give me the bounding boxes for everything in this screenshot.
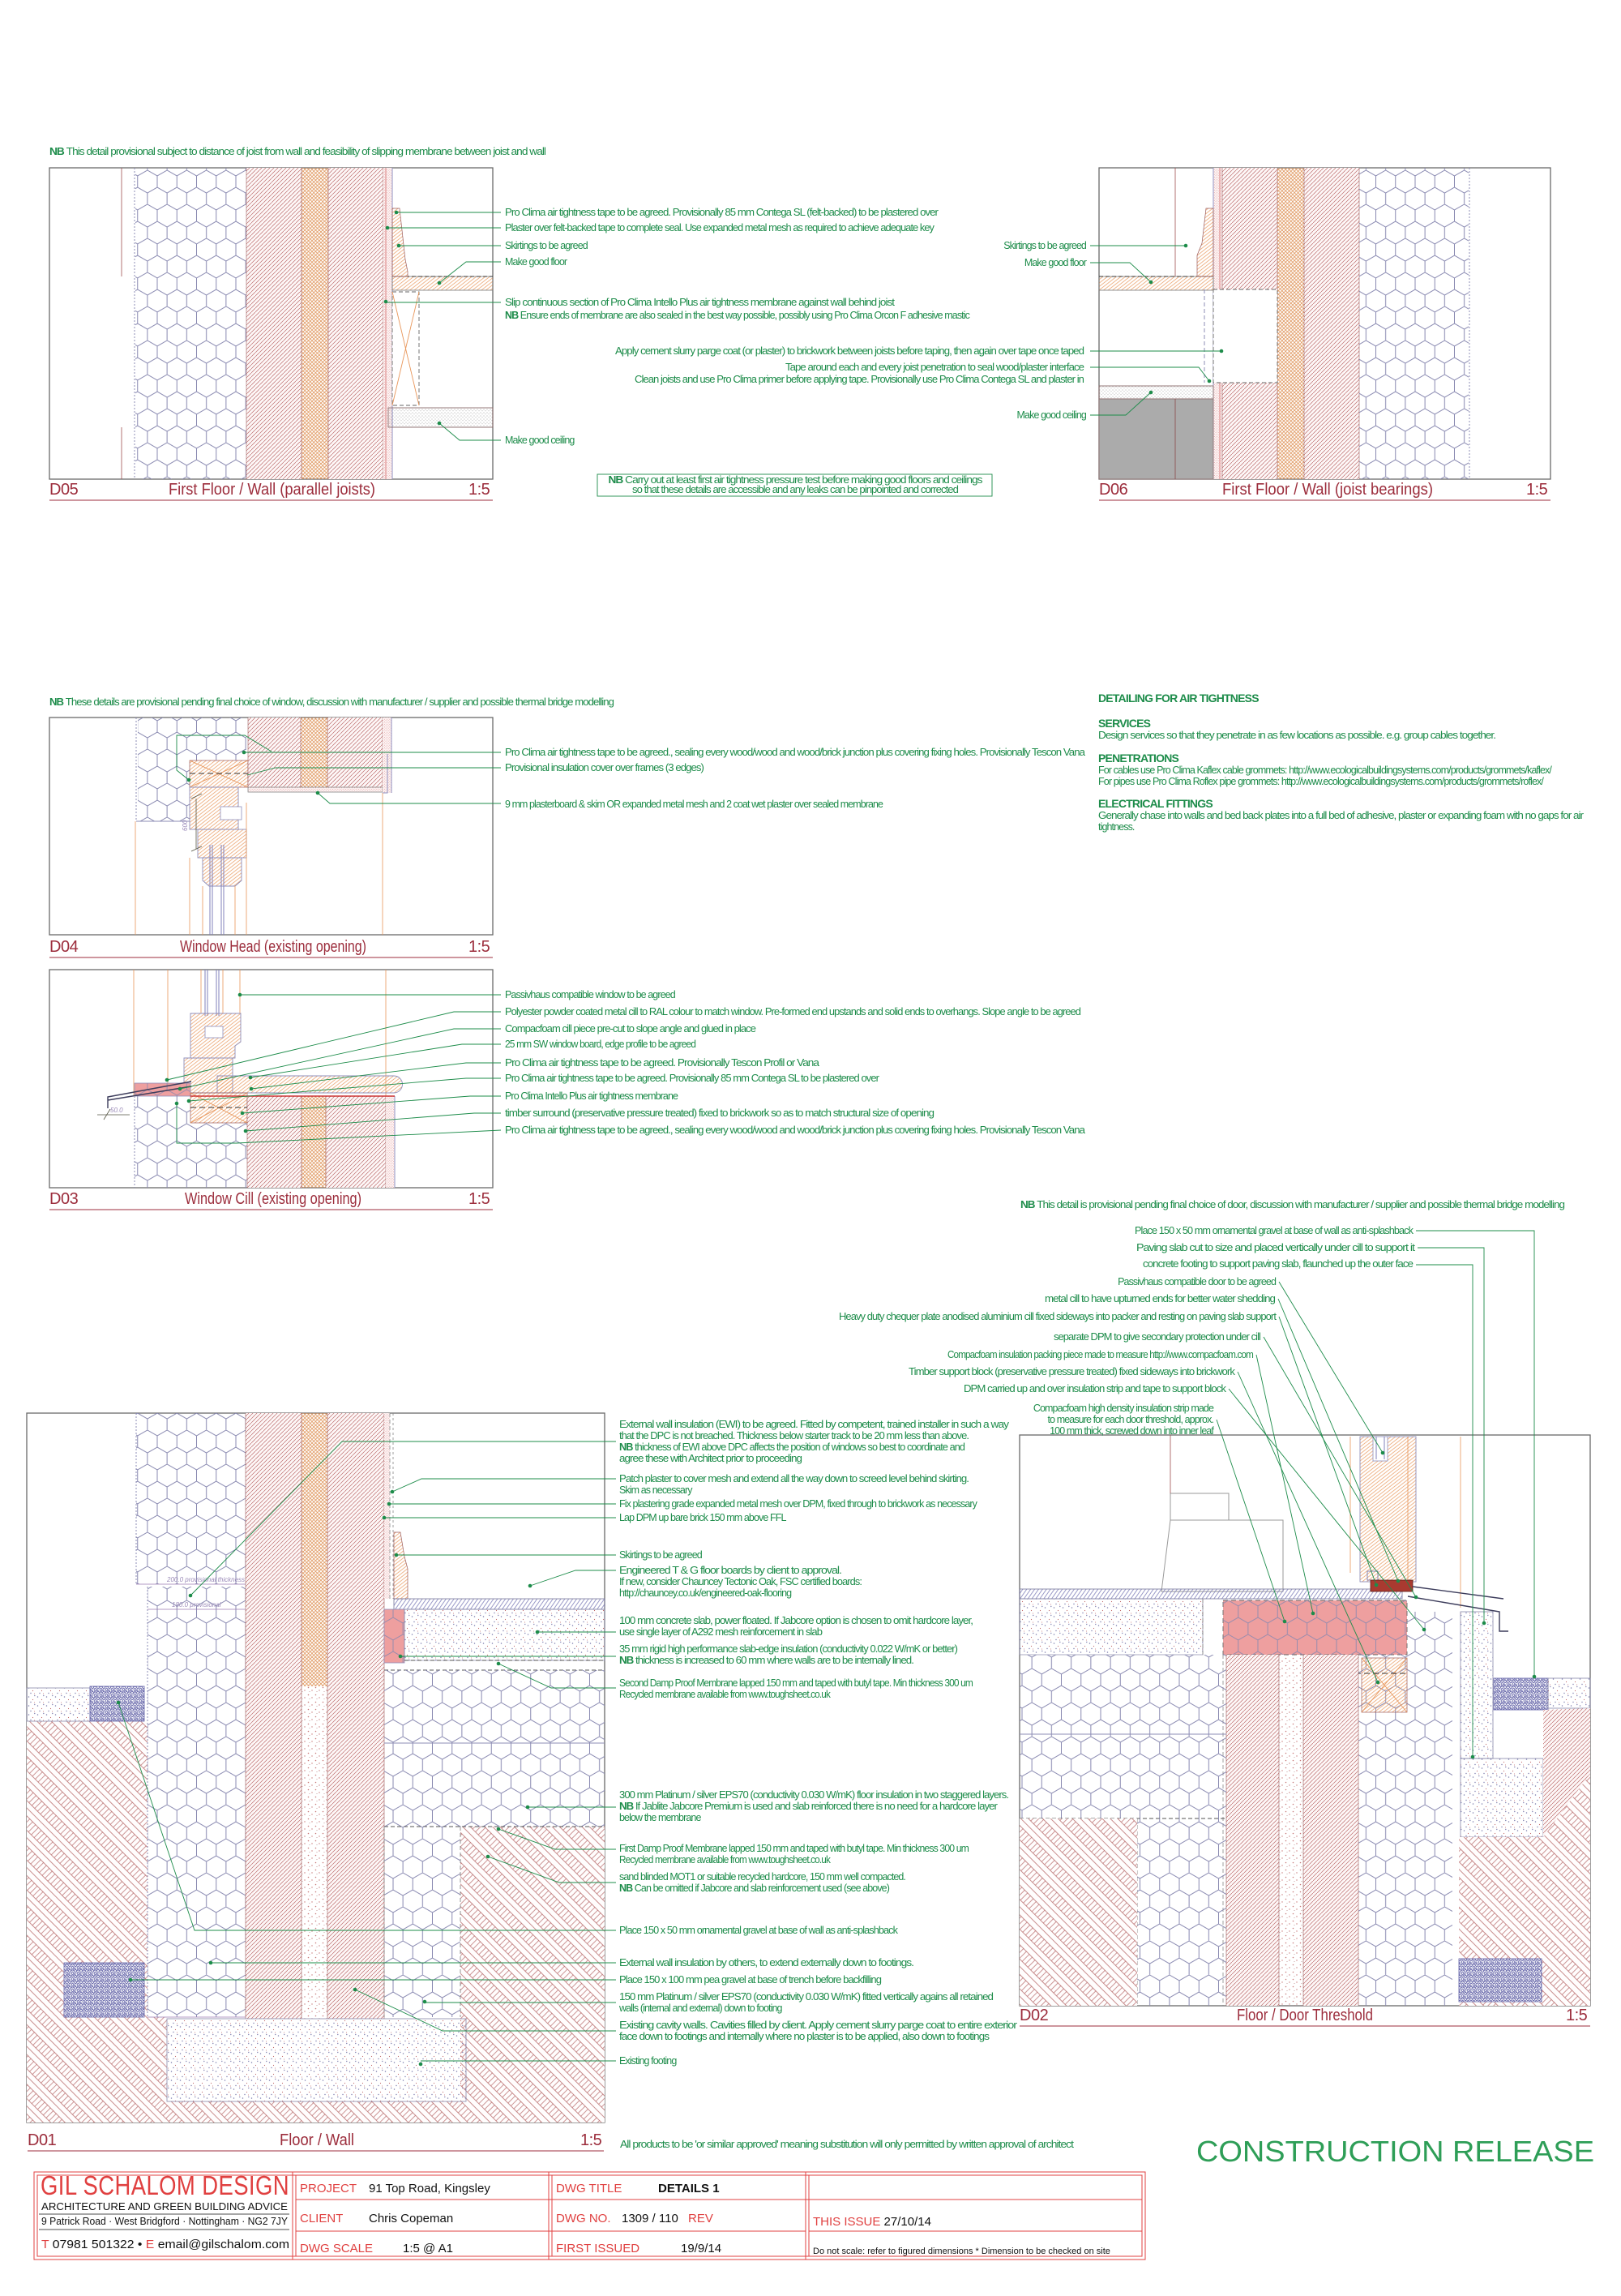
svg-text:Passivhaus compatible door to: Passivhaus compatible door to be agreed [1118,1276,1277,1287]
svg-text:19/9/14: 19/9/14 [681,2242,721,2255]
svg-text:PENETRATIONS: PENETRATIONS [1098,752,1178,765]
svg-text:Place 150 x 50 mm ornamental g: Place 150 x 50 mm ornamental gravel at b… [619,1925,899,1936]
svg-text:1:5: 1:5 [580,2131,602,2149]
svg-text:Pro Clima air tightness tape t: Pro Clima air tightness tape to be agree… [505,1057,819,1069]
svg-text:below the membrane: below the membrane [619,1812,701,1823]
svg-text:Pro Clima air tightness tape t: Pro Clima air tightness tape to be agree… [505,1124,1085,1136]
svg-text:Plaster over felt-backed tape: Plaster over felt-backed tape to complet… [505,222,935,233]
svg-text:SERVICES: SERVICES [1098,717,1151,730]
svg-text:1:5: 1:5 [468,481,490,499]
svg-text:CONSTRUCTION RELEASE: CONSTRUCTION RELEASE [1196,2135,1594,2168]
svg-text:D04: D04 [49,938,79,956]
svg-text:walls (internal and external): walls (internal and external) down to fo… [618,2003,783,2014]
svg-text:50.0: 50.0 [110,1107,123,1114]
svg-text:Make good floor: Make good floor [1024,257,1087,268]
svg-text:For pipes use Pro Clima Roflex: For pipes use Pro Clima Roflex pipe grom… [1098,776,1544,787]
svg-text:Skim as necessary: Skim as necessary [619,1484,693,1496]
svg-text:180.0 provisional: 180.0 provisional [172,1601,221,1608]
svg-text:1:5: 1:5 [1526,481,1548,499]
svg-text:Provisional insulation cover o: Provisional insulation cover over frames… [505,762,704,773]
svg-text:Paving slab cut to size and pl: Paving slab cut to size and placed verti… [1136,1242,1416,1253]
svg-text:T 07981 501322 • E email@gilsc: T 07981 501322 • E email@gilschalom.com [41,2238,289,2251]
svg-text:that the DPC is not breached.: that the DPC is not breached. Thickness … [619,1430,969,1441]
svg-text:Pro Clima air tightness tape t: Pro Clima air tightness tape to be agree… [505,1073,879,1084]
svg-text:If new, consider Chauncey Tect: If new, consider Chauncey Tectonic Oak, … [619,1576,862,1587]
svg-text:Compacfoam insulation packing: Compacfoam insulation packing piece made… [947,1349,1253,1360]
svg-text:NB thickness is increased to 6: NB thickness is increased to 60 mm where… [619,1655,913,1666]
svg-text:DWG SCALE: DWG SCALE [300,2242,373,2255]
svg-text:D05: D05 [49,481,79,499]
svg-text:NB Can be omitted if Jabcore a: NB Can be omitted if Jabcore and slab re… [619,1883,890,1894]
svg-text:CLIENT: CLIENT [300,2212,343,2225]
svg-text:Lap DPM up bare brick 150 mm a: Lap DPM up bare brick 150 mm above FFL [619,1512,786,1523]
svg-text:FIRST ISSUED: FIRST ISSUED [556,2242,639,2255]
svg-text:Make good ceiling: Make good ceiling [1017,409,1087,421]
svg-text:9 mm plasterboard & skim OR ex: 9 mm plasterboard & skim OR expanded met… [505,799,883,810]
svg-text:Apply cement slurry parge coat: Apply cement slurry parge coat (or plast… [615,345,1084,357]
svg-text:NB This detail provisional sub: NB This detail provisional subject to di… [49,146,545,157]
svg-text:Floor / Wall: Floor / Wall [280,2131,354,2149]
svg-text:to measure for each door thres: to measure for each door threshold, appr… [1048,1414,1214,1425]
svg-text:Engineered T & G floor boards: Engineered T & G floor boards by client … [619,1565,841,1576]
svg-text:9 Patrick Road · West Bridgfor: 9 Patrick Road · West Bridgford · Nottin… [41,2216,289,2227]
svg-text:91 Top Road, Kingsley: 91 Top Road, Kingsley [369,2182,490,2195]
svg-text:so that these details are acce: so that these details are accessible and… [632,484,959,495]
svg-text:Fix plastering grade expanded: Fix plastering grade expanded metal mesh… [619,1498,978,1510]
svg-text:600: 600 [182,820,189,831]
svg-text:Existing footing: Existing footing [619,2055,677,2067]
svg-text:Clean joists and use Pro Clima: Clean joists and use Pro Clima primer be… [635,374,1084,385]
svg-text:External wall insulation by ot: External wall insulation by others, to e… [619,1957,913,1968]
svg-text:35 mm rigid high performance s: 35 mm rigid high performance slab-edge i… [619,1643,958,1655]
svg-text:Patch plaster to cover mesh an: Patch plaster to cover mesh and extend a… [619,1473,969,1484]
svg-text:Existing cavity walls. Caviti: Existing cavity walls. Cavities filled b… [619,2020,1017,2031]
svg-text:NB If Jablite Jabcore Premium: NB If Jablite Jabcore Premium is used an… [619,1801,998,1812]
svg-text:D02: D02 [1020,2007,1049,2024]
svg-text:150 mm Platinum / silver EPS70: 150 mm Platinum / silver EPS70 (conducti… [619,1991,994,2003]
svg-text:http://chauncey.co.uk/engineer: http://chauncey.co.uk/engineered-oak-flo… [619,1587,792,1599]
svg-text:300 mm Platinum / silver EPS70: 300 mm Platinum / silver EPS70 (conducti… [619,1789,1008,1801]
svg-text:Skirtings to be agreed: Skirtings to be agreed [505,240,588,251]
svg-text:DETAILING FOR AIR TIGHTNESS: DETAILING FOR AIR TIGHTNESS [1098,692,1259,705]
svg-text:DETAILS 1: DETAILS 1 [658,2182,720,2195]
svg-text:Floor / Door Threshold: Floor / Door Threshold [1237,2007,1373,2024]
svg-text:Timber support block (preserva: Timber support block (preservative press… [909,1366,1236,1377]
svg-text:use single layer of A292 mesh: use single layer of A292 mesh reinforcem… [619,1626,823,1638]
svg-text:NB Ensure ends of membrane are: NB Ensure ends of membrane are also seal… [505,310,970,321]
svg-text:metal cill to have upturned en: metal cill to have upturned ends for bet… [1045,1293,1276,1304]
svg-text:D01: D01 [28,2131,57,2149]
svg-text:DWG NO.: DWG NO. [556,2212,611,2225]
svg-text:200.0 provisional thickness: 200.0 provisional thickness [166,1576,245,1583]
svg-text:First Damp Proof Membrane lapp: First Damp Proof Membrane lapped 150 mm … [619,1843,969,1854]
svg-text:1:5: 1:5 [468,938,490,956]
svg-text:Second Damp Proof Membrane lap: Second Damp Proof Membrane lapped 150 mm… [619,1677,973,1689]
svg-text:Generally chase into walls and: Generally chase into walls and bed back … [1098,810,1584,821]
svg-text:NB thickness of EWI above DPC: NB thickness of EWI above DPC affects th… [619,1441,965,1453]
svg-text:THIS ISSUE 27/10/14: THIS ISSUE 27/10/14 [813,2215,931,2229]
svg-text:100 mm thick, screwed down int: 100 mm thick, screwed down into inner le… [1050,1425,1214,1437]
svg-text:ARCHITECTURE AND GREEN BUILD: ARCHITECTURE AND GREEN BUILDING ADVICE [41,2200,288,2212]
svg-text:separate DPM to give secondary: separate DPM to give secondary protectio… [1054,1331,1260,1343]
svg-text:Make good floor: Make good floor [505,256,567,268]
svg-text:Pro Clima air tightness tape t: Pro Clima air tightness tape to be agree… [505,207,939,218]
svg-text:ELECTRICAL FITTINGS: ELECTRICAL FITTINGS [1098,797,1213,810]
svg-text:Polyester powder coated metal: Polyester powder coated metal cill to RA… [505,1006,1081,1017]
svg-text:Window Cill (existing opening): Window Cill (existing opening) [185,1190,361,1208]
svg-text:25 mm SW window board, edge pr: 25 mm SW window board, edge profile to b… [505,1039,696,1050]
svg-text:For cables use Pro Clima Kafle: For cables use Pro Clima Kaflex cable gr… [1098,765,1552,776]
svg-text:timber surround (preservative: timber surround (preservative pressure t… [505,1107,935,1119]
svg-text:Pro Clima Intello Plus air tig: Pro Clima Intello Plus air tightness mem… [505,1090,678,1102]
svg-text:tightness.: tightness. [1098,821,1135,833]
svg-text:All products to be 'or similar: All products to be 'or similar approved'… [620,2139,1075,2150]
svg-text:sand blinded MOT1 or suitable: sand blinded MOT1 or suitable recycled h… [619,1871,905,1883]
svg-text:Tape around each and every joi: Tape around each and every joist penetra… [785,362,1084,373]
svg-text:1:5: 1:5 [1566,2007,1588,2024]
svg-text:Place 150 x 50 mm ornamental g: Place 150 x 50 mm ornamental gravel at b… [1135,1225,1414,1236]
svg-text:agree these with Architect pri: agree these with Architect prior to proc… [619,1453,802,1464]
svg-text:External wall insulation (EWI): External wall insulation (EWI) to be agr… [619,1419,1010,1430]
svg-text:Slip continuous section of Pro: Slip continuous section of Pro Clima Int… [505,297,896,308]
svg-text:First Floor / Wall (joist bear: First Floor / Wall (joist bearings) [1222,481,1433,499]
svg-text:1:5: 1:5 [468,1190,490,1208]
svg-text:Compacfoam high density insula: Compacfoam high density insulation strip… [1033,1403,1214,1414]
svg-text:Recycled membrane available fr: Recycled membrane available from www.tou… [619,1854,832,1865]
svg-text:Place 150 x 100 mm pea gravel: Place 150 x 100 mm pea gravel at base of… [619,1974,882,1985]
svg-text:Heavy duty chequer plate anodi: Heavy duty chequer plate anodised alumin… [839,1311,1277,1322]
svg-text:Design services so that they p: Design services so that they penetrate i… [1098,730,1495,741]
svg-text:Recycled membrane available fr: Recycled membrane available from www.tou… [619,1689,832,1700]
svg-text:Skirtings to be agreed: Skirtings to be agreed [1003,240,1087,251]
svg-text:D06: D06 [1099,481,1128,499]
svg-text:NB This detail is provisional: NB This detail is provisional pending fi… [1020,1199,1565,1210]
svg-text:PROJECT: PROJECT [300,2182,357,2195]
svg-text:REV: REV [688,2212,713,2225]
svg-text:D03: D03 [49,1190,79,1208]
svg-text:face down to footings and inte: face down to footings and internally whe… [619,2031,990,2042]
svg-text:Passivhaus compatible window t: Passivhaus compatible window to be agree… [505,989,676,1000]
svg-text:DWG TITLE: DWG TITLE [556,2182,622,2195]
svg-text:Compacfoam cill piece pre-cut: Compacfoam cill piece pre-cut to slope a… [505,1023,756,1034]
svg-text:1309 / 110: 1309 / 110 [622,2212,678,2225]
svg-text:Chris Copeman: Chris Copeman [369,2212,453,2225]
svg-text:GIL SCHALOM DESIGN: GIL SCHALOM DESIGN [41,2170,289,2200]
svg-text:Window Head (existing opening): Window Head (existing opening) [180,938,366,956]
svg-text:Skirtings to be agreed: Skirtings to be agreed [619,1549,703,1561]
svg-text:1:5 @ A1: 1:5 @ A1 [403,2242,453,2255]
svg-text:NB These details are provision: NB These details are provisional pending… [49,696,614,708]
svg-text:Do not scale: refer to figured: Do not scale: refer to figured dimension… [813,2247,1110,2256]
svg-text:100 mm concrete slab, power fl: 100 mm concrete slab, power floated. If … [619,1615,973,1626]
svg-text:First Floor / Wall (parallel j: First Floor / Wall (parallel joists) [169,481,375,499]
svg-text:Make good ceiling: Make good ceiling [505,435,575,446]
svg-text:DPM carried up and over insula: DPM carried up and over insulation strip… [964,1383,1227,1394]
svg-text:Pro Clima air tightness tape t: Pro Clima air tightness tape to be agree… [505,747,1085,758]
svg-text:concrete footing to support pa: concrete footing to support paving slab,… [1143,1258,1414,1270]
